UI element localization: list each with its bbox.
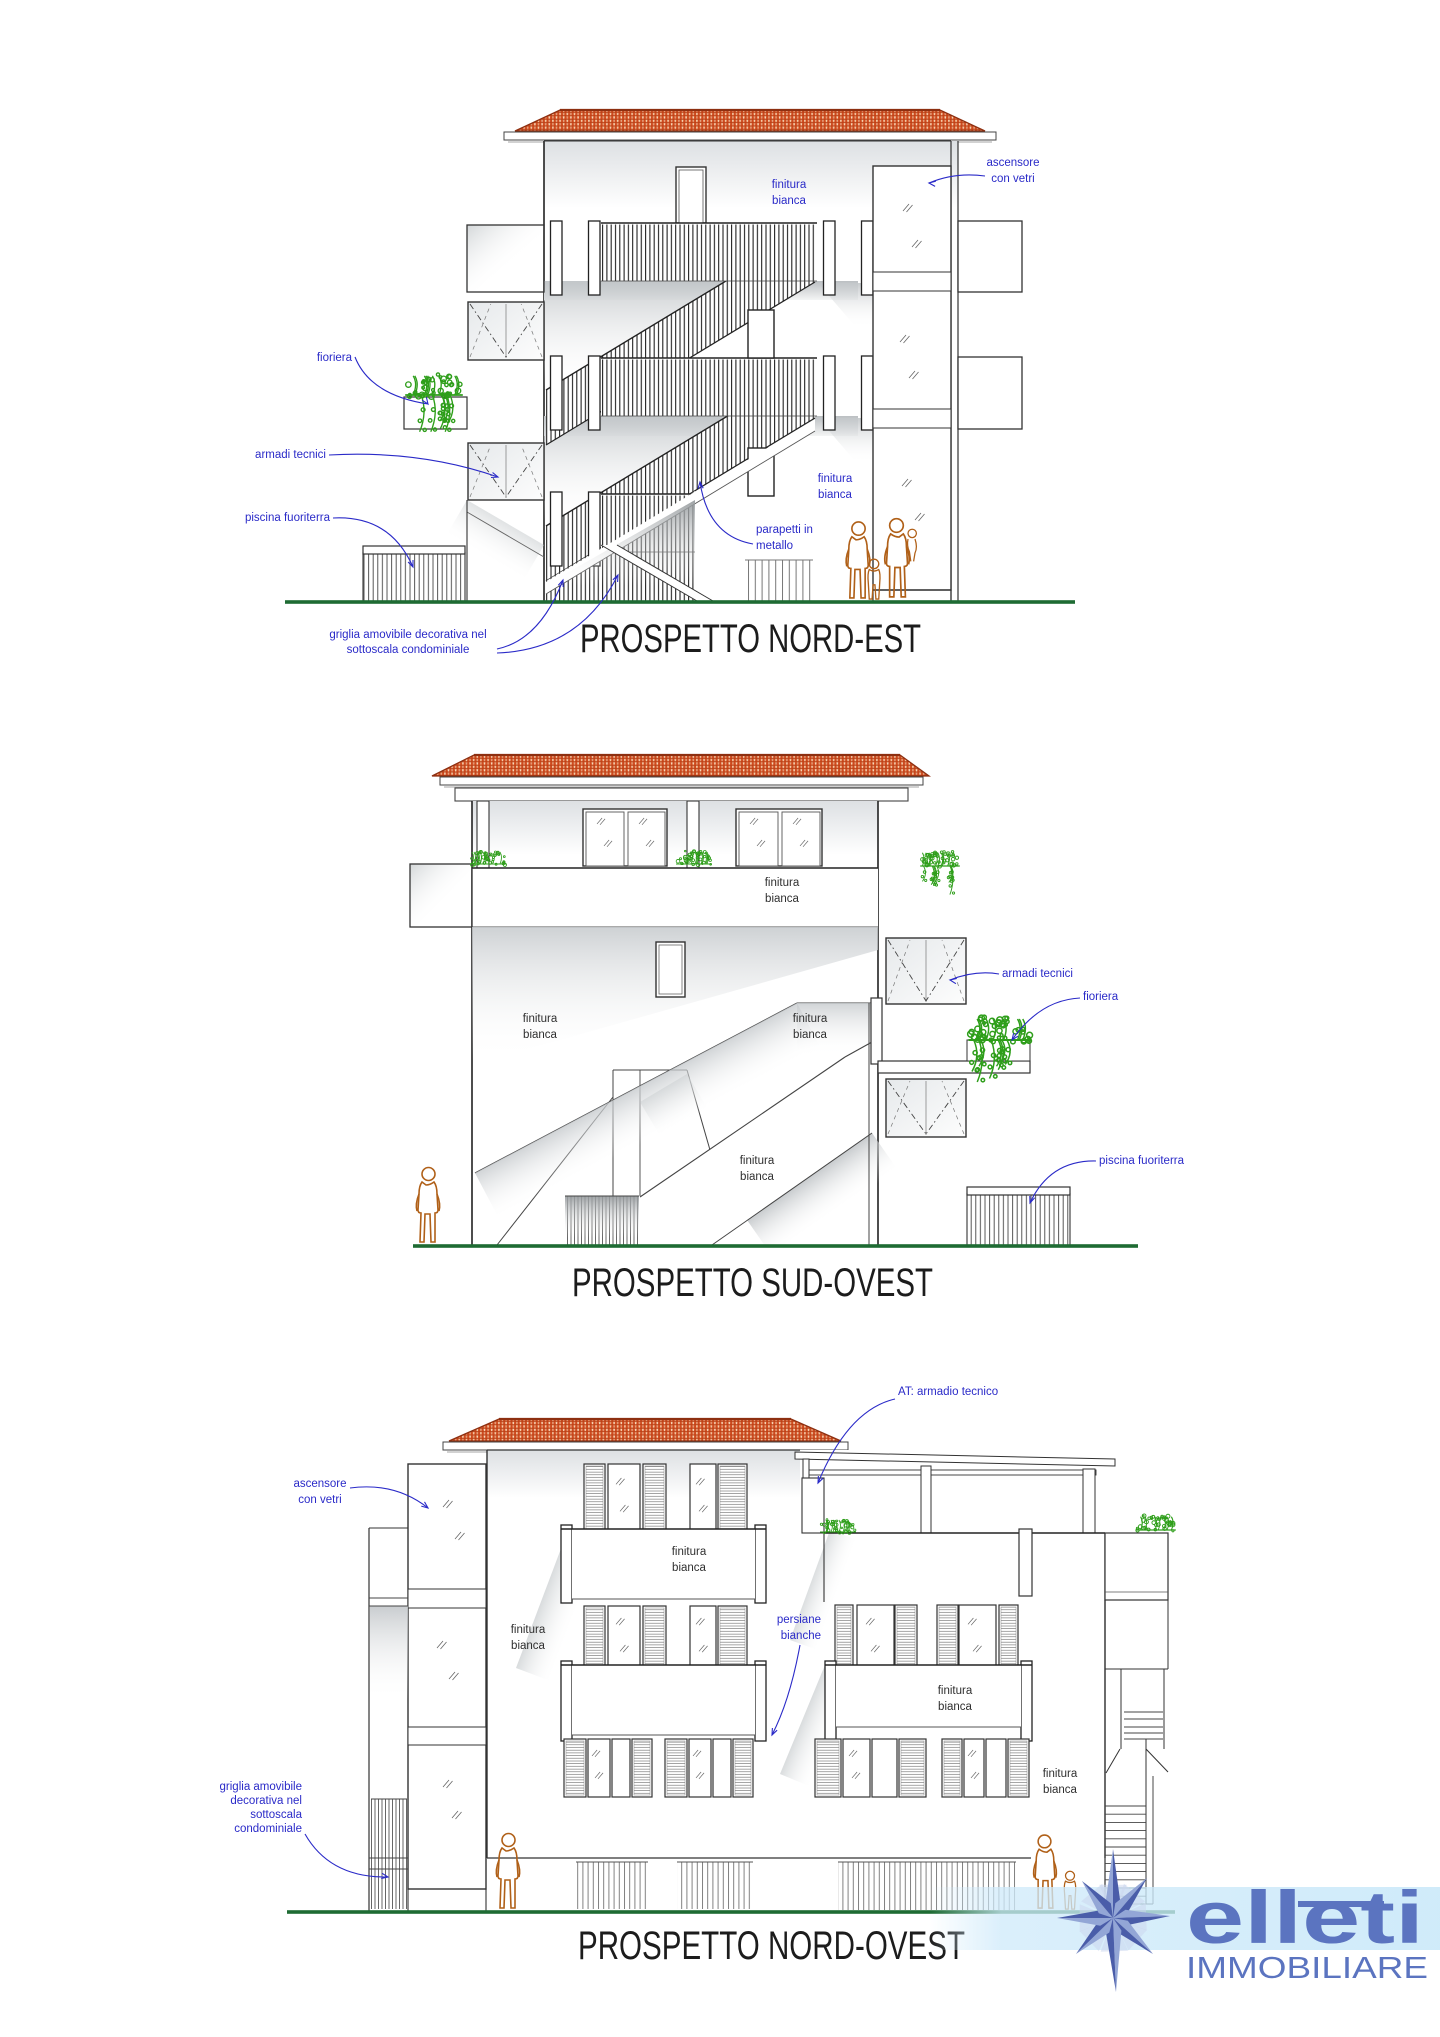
- svg-text:finitura: finitura: [765, 877, 800, 889]
- svg-text:elleti: elleti: [1186, 1876, 1424, 1959]
- svg-text:bianca: bianca: [818, 489, 852, 501]
- svg-text:finitura: finitura: [793, 1013, 828, 1025]
- svg-text:armadi tecnici: armadi tecnici: [1002, 968, 1073, 980]
- svg-text:piscina fuoriterra: piscina fuoriterra: [245, 512, 331, 524]
- svg-text:bianca: bianca: [793, 1029, 827, 1041]
- svg-text:ascensore: ascensore: [293, 1478, 346, 1490]
- svg-text:finitura: finitura: [772, 179, 807, 191]
- svg-text:finitura: finitura: [511, 1624, 546, 1636]
- svg-text:finitura: finitura: [672, 1546, 707, 1558]
- svg-text:finitura: finitura: [818, 473, 853, 485]
- svg-text:finitura: finitura: [938, 1685, 973, 1697]
- svg-text:griglia amovibile decorativa n: griglia amovibile decorativa nel: [329, 629, 486, 641]
- svg-text:sottoscala condominiale: sottoscala condominiale: [347, 644, 470, 656]
- svg-text:IMMOBILIARE: IMMOBILIARE: [1186, 1950, 1428, 1985]
- svg-text:finitura: finitura: [1043, 1768, 1078, 1780]
- svg-text:fioriera: fioriera: [317, 352, 353, 364]
- svg-text:finitura: finitura: [523, 1013, 558, 1025]
- svg-text:bianca: bianca: [1043, 1784, 1077, 1796]
- svg-text:bianca: bianca: [772, 195, 806, 207]
- svg-text:fioriera: fioriera: [1083, 991, 1119, 1003]
- svg-text:metallo: metallo: [756, 540, 793, 552]
- svg-text:parapetti in: parapetti in: [756, 524, 813, 536]
- svg-text:bianca: bianca: [672, 1562, 706, 1574]
- svg-text:AT: armadio tecnico: AT: armadio tecnico: [898, 1386, 998, 1398]
- svg-text:sottoscala: sottoscala: [250, 1809, 302, 1821]
- svg-text:con vetri: con vetri: [991, 173, 1034, 185]
- svg-text:bianca: bianca: [938, 1701, 972, 1713]
- svg-text:PROSPETTO SUD-OVEST: PROSPETTO SUD-OVEST: [572, 1261, 933, 1305]
- svg-text:persiane: persiane: [777, 1614, 821, 1626]
- svg-text:bianca: bianca: [765, 893, 799, 905]
- svg-text:finitura: finitura: [740, 1155, 775, 1167]
- svg-text:PROSPETTO NORD-OVEST: PROSPETTO NORD-OVEST: [578, 1924, 965, 1968]
- svg-text:ascensore: ascensore: [986, 157, 1039, 169]
- svg-text:bianca: bianca: [511, 1640, 545, 1652]
- svg-text:condominiale: condominiale: [234, 1823, 302, 1835]
- svg-text:piscina fuoriterra: piscina fuoriterra: [1099, 1155, 1185, 1167]
- svg-text:armadi tecnici: armadi tecnici: [255, 449, 326, 461]
- svg-text:PROSPETTO NORD-EST: PROSPETTO NORD-EST: [580, 617, 921, 661]
- svg-text:bianca: bianca: [523, 1029, 557, 1041]
- svg-text:griglia amovibile: griglia amovibile: [220, 1781, 302, 1793]
- svg-text:decorativa nel: decorativa nel: [230, 1795, 302, 1807]
- svg-text:bianca: bianca: [740, 1171, 774, 1183]
- svg-text:bianche: bianche: [781, 1630, 821, 1642]
- svg-text:con vetri: con vetri: [298, 1494, 341, 1506]
